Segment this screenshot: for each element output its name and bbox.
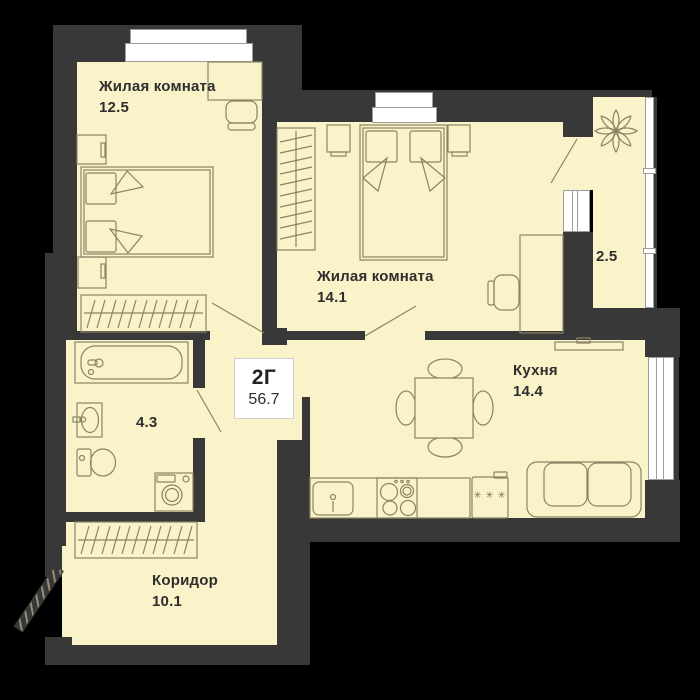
floor-balcony-door-gap [563,137,593,190]
floor-hall-lower [205,440,277,522]
freezer-marks: ✳ ✳ ✳ [472,490,508,501]
label-corridor: Коридор 10.1 [152,570,218,612]
wall-left-mid [45,253,66,546]
window-kitchen [648,357,674,480]
floor-bathroom [66,340,193,512]
wall-balcony-left-bottom [563,232,593,308]
balcony-glazing-transom [643,248,656,254]
floor-living2-door-gap [365,331,425,340]
wall-left-room1 [66,253,77,340]
floor-plan: ✳ ✳ ✳ Жилая комната 12.5 Жилая комната 1… [0,0,700,700]
wall-between-rooms [262,122,277,331]
floor-balcony [593,97,645,308]
wall-kitchen-top-thick [563,308,650,340]
room-area: 14.4 [513,381,558,402]
wall-stub [262,328,287,345]
wall-left-upper [53,25,77,253]
room-area: 4.3 [136,412,157,433]
label-bathroom: 4.3 [136,412,157,433]
room-area: 14.1 [317,287,434,308]
room-area: 2.5 [596,246,617,267]
wall-bath-bottom [45,512,205,522]
room-name: Коридор [152,570,218,591]
wall-living1-bottom [53,331,210,340]
window-living2-inner [372,107,437,123]
window-living1-outer [130,29,247,44]
window-frame-line [663,358,664,479]
wall-kitchen-bottom [297,518,648,542]
wall-kitchen-left-wide [277,440,310,645]
plan-total-area: 56.7 [235,390,293,410]
wall-bottom [45,645,310,665]
wall-kitchen-right-bottom [645,480,680,542]
room-name: Кухня [513,360,558,381]
label-living2: Жилая комната 14.1 [317,266,434,308]
wall-kitchen-window-edge [674,357,679,480]
wall-kitchen-top-left [287,331,365,340]
window-living1-inner [125,43,253,62]
room-area: 12.5 [99,97,216,118]
room-area: 10.1 [152,591,218,612]
room-name: Жилая комната [99,76,216,97]
wall-kitchen-top-right [425,331,563,340]
window-frame-line [656,358,657,479]
window-frame-line [577,191,578,231]
plan-type: 2Г [235,366,293,390]
floor-bath-door-gap [193,388,205,438]
label-balcony: 2.5 [596,246,617,267]
balcony-glazing-edge [654,97,657,308]
balcony-glazing-transom [643,168,656,174]
wall-bath-right-a [193,340,205,388]
wall-bath-right-b [193,438,205,512]
entrance-door-icon [13,565,63,632]
room-name: Жилая комната [317,266,434,287]
wall-kitchen-right-top [645,308,680,357]
plan-type-badge: 2Г 56.7 [234,358,294,419]
balcony-glazing [645,97,654,308]
window-frame-line [572,191,573,231]
label-kitchen: Кухня 14.4 [513,360,558,402]
wall-top-right-column [262,25,302,122]
wall-balcony-top [593,90,652,97]
wall-kitchen-left-narrow [302,397,310,440]
label-living1: Жилая комната 12.5 [99,76,216,118]
wall-balcony-left-top [563,90,593,137]
floor-living1-door-gap [210,331,262,340]
window-living2-outer [375,92,433,108]
